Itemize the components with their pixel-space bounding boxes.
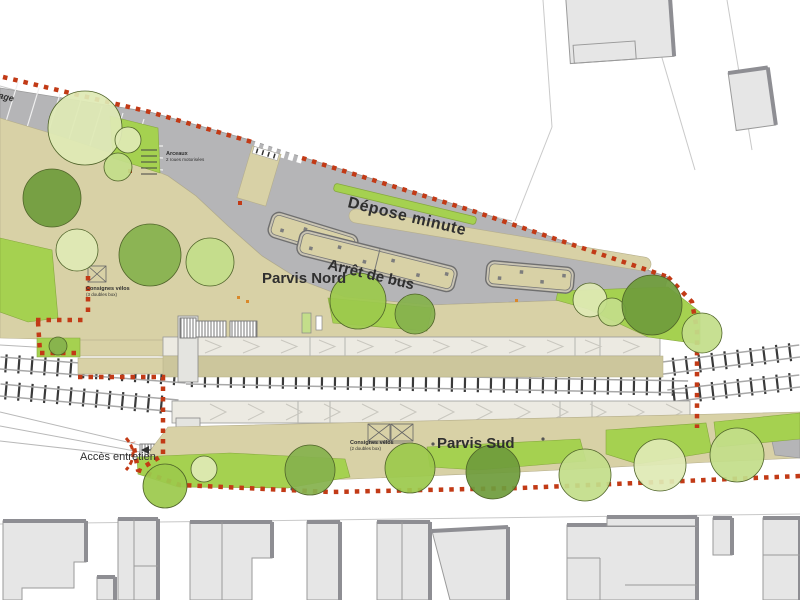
building: [97, 577, 115, 600]
stair-hatch: [180, 318, 196, 338]
building-northeast: [728, 67, 776, 130]
tree: [49, 337, 67, 355]
railway-track: [654, 343, 800, 377]
orange-marker: [237, 296, 240, 299]
bus-seat: [540, 280, 544, 284]
ticket-machine: [302, 313, 311, 333]
tree: [559, 449, 611, 501]
railway-track: [667, 373, 800, 404]
building: [190, 522, 272, 600]
rail: [186, 384, 688, 393]
stair-hatch: [230, 321, 257, 337]
tree: [682, 313, 722, 353]
label-acces-entretien: Accès entretien: [80, 451, 156, 463]
tree: [622, 275, 682, 335]
tree: [104, 153, 132, 181]
platform-north-band: [163, 356, 663, 377]
building: [713, 518, 732, 555]
tree: [115, 127, 141, 153]
tree: [119, 224, 181, 286]
bus-seat: [562, 274, 566, 278]
rail: [667, 375, 799, 390]
tree: [710, 428, 764, 482]
tree: [395, 294, 435, 334]
bus-seat: [498, 276, 502, 280]
building: [307, 522, 340, 600]
tree: [285, 445, 335, 495]
building: [567, 525, 697, 600]
rail: [0, 396, 177, 412]
tree: [191, 456, 217, 482]
building: [118, 519, 158, 600]
building: [763, 518, 800, 600]
red-marker: [238, 201, 242, 205]
tree: [385, 443, 435, 493]
label-arceaux-sub: 2 roues motorisées: [166, 157, 205, 162]
parcel-line: [543, 0, 552, 127]
parcel-line: [515, 127, 552, 221]
tree: [23, 169, 81, 227]
tree: [186, 238, 234, 286]
siding-track: [0, 412, 148, 447]
site-plan: age Arceaux 2 roues motorisées Dépose mi…: [0, 0, 800, 600]
tree: [634, 439, 686, 491]
label-consignes-nord-sub: (3 doubles box): [86, 292, 118, 297]
tree: [143, 464, 187, 508]
green-area: [0, 238, 58, 322]
label-parvis-sud: Parvis Sud: [437, 435, 515, 452]
site-plan-canvas: age Arceaux 2 roues motorisées Dépose mi…: [0, 0, 800, 600]
railway-track: [0, 382, 179, 414]
building-north: [565, 0, 674, 64]
building: [377, 522, 430, 600]
tree: [56, 229, 98, 271]
tree: [48, 91, 122, 165]
tree: [466, 445, 520, 499]
label-consignes-sud-sub: (2 doubles box): [350, 446, 382, 451]
bollard: [541, 437, 544, 440]
bollard: [431, 442, 434, 445]
rail: [1, 384, 179, 400]
siding-track: [0, 426, 140, 452]
orange-marker: [246, 300, 249, 303]
building: [432, 527, 508, 600]
rail: [669, 387, 800, 402]
ticket-machine: [316, 316, 322, 330]
bus-seat: [520, 270, 524, 274]
footbridge-slabs: [78, 340, 165, 374]
orange-marker: [515, 299, 518, 302]
stair-hatch: [196, 321, 226, 337]
building: [3, 521, 86, 600]
